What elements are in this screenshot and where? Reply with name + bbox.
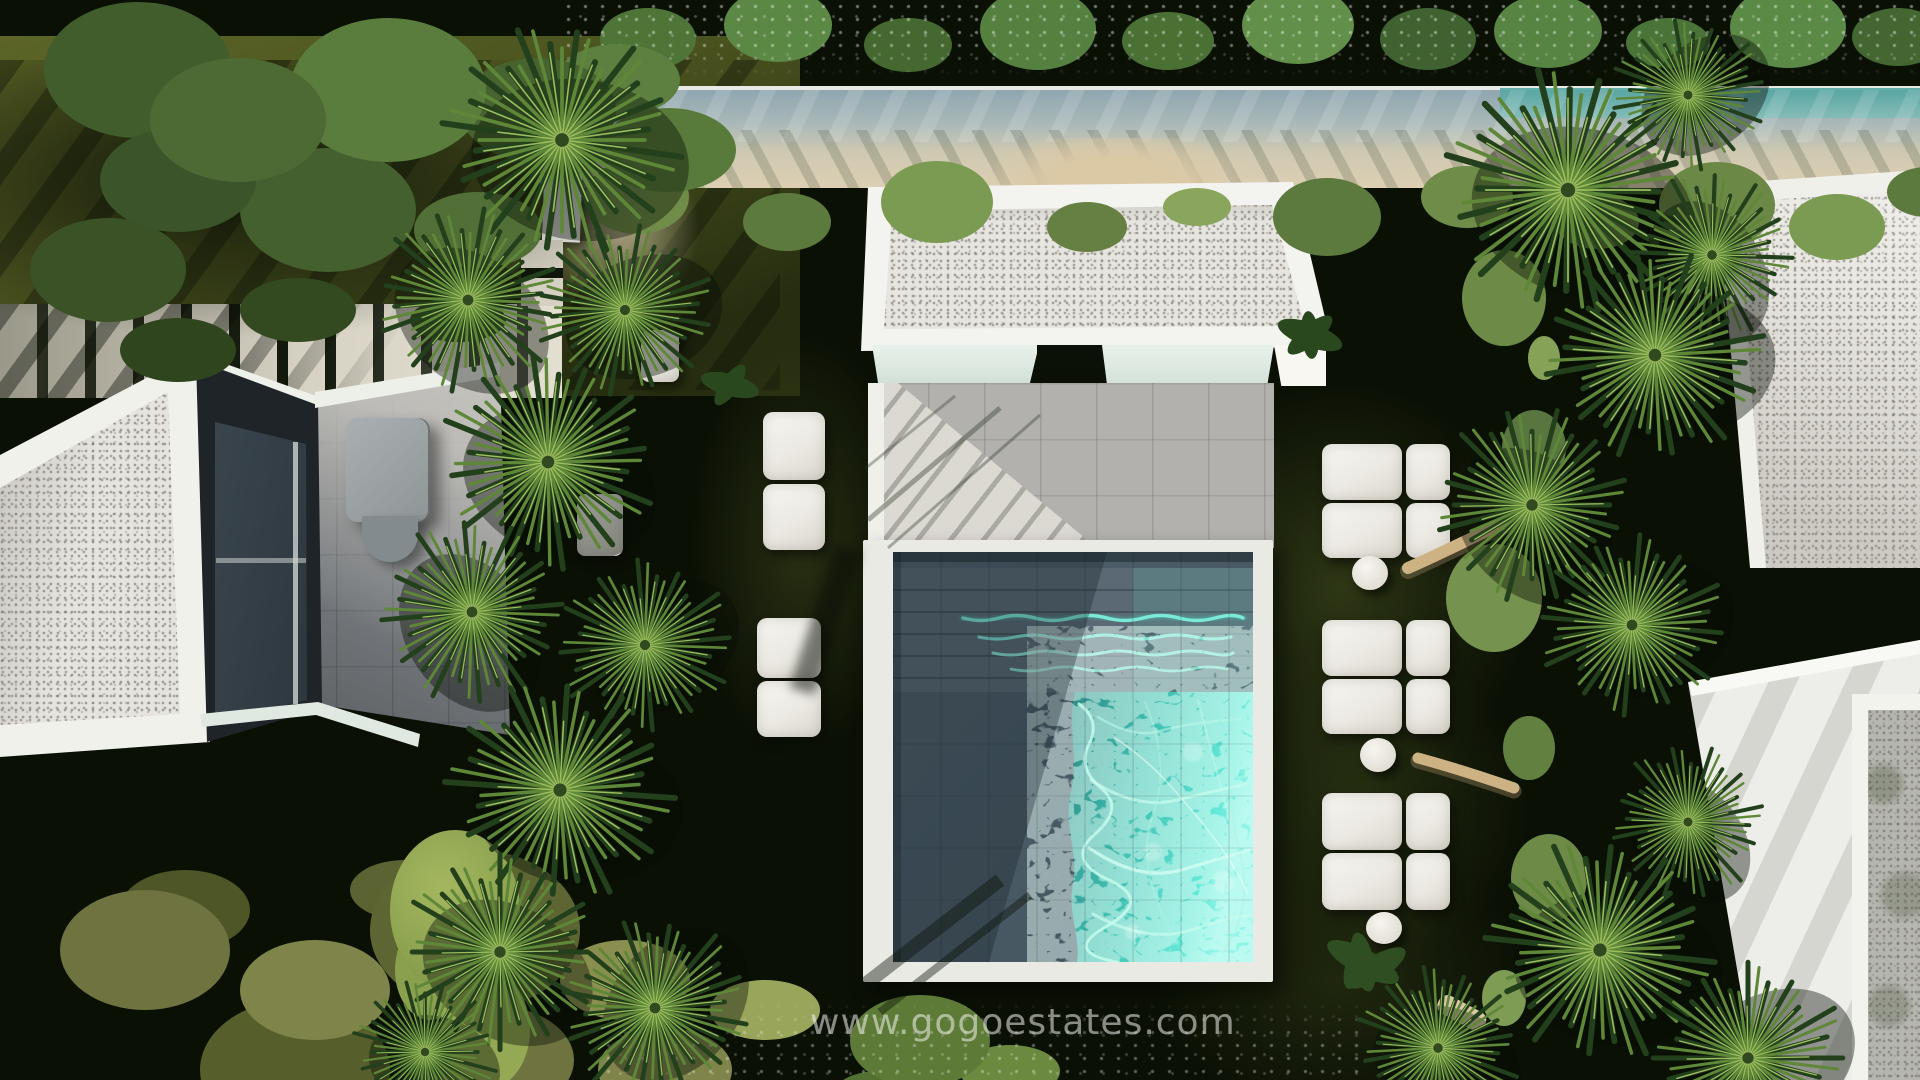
aerial-photo: www.gogoestates.com xyxy=(0,0,1920,1080)
watermark-text: www.gogoestates.com xyxy=(810,1002,1236,1043)
vignette xyxy=(0,0,1920,1080)
